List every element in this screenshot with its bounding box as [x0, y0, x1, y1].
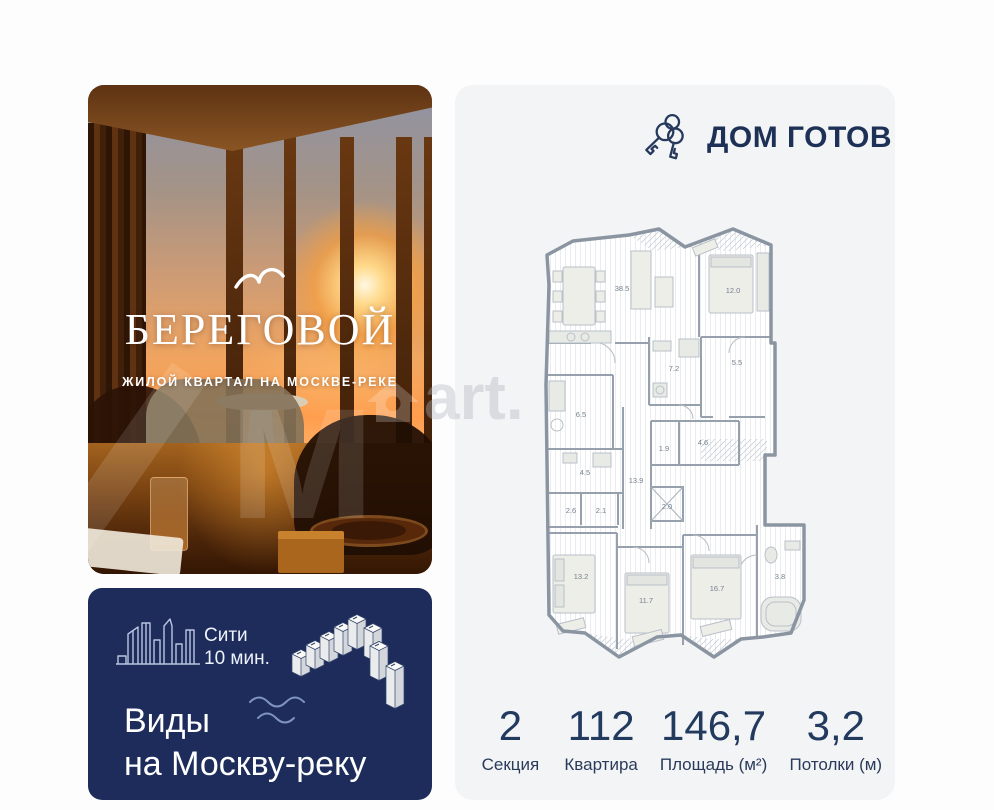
room-label: 2.0 [662, 502, 672, 511]
stats-row: 2 Секция 112 Квартира 146,7 Площадь (м²)… [455, 703, 895, 775]
stat-ceiling: 3,2 Потолки (м) [777, 703, 895, 775]
brand-block: БЕРЕГОВОЙ ЖИЛОЙ КВАРТАЛ НА МОСКВЕ-РЕКЕ [88, 263, 432, 389]
transit-line2: 10 мин. [204, 647, 270, 670]
room-label: 2.1 [596, 506, 606, 515]
room-label: 4.6 [698, 438, 708, 447]
brand-tagline: ЖИЛОЙ КВАРТАЛ НА МОСКВЕ-РЕКЕ [88, 375, 432, 389]
gallery-photo-card[interactable]: м БЕРЕГОВОЙ ЖИЛОЙ КВАРТАЛ НА МОСКВЕ-РЕКЕ [88, 85, 432, 574]
room-label: 2.6 [566, 506, 576, 515]
room-label: 1.9 [659, 444, 669, 453]
room-label: 3.8 [775, 572, 785, 581]
brand-title: БЕРЕГОВОЙ [88, 304, 432, 355]
stat-apartment: 112 Квартира [552, 703, 651, 775]
stat-value: 112 [552, 703, 651, 749]
watermark-text: art. [424, 360, 524, 434]
stat-label: Площадь (м²) [650, 755, 776, 775]
transit-label: Сити 10 мин. [204, 624, 270, 670]
room-label: 13.9 [629, 476, 644, 485]
listing-image: м БЕРЕГОВОЙ ЖИЛОЙ КВАРТАЛ НА МОСКВЕ-РЕКЕ [0, 0, 994, 810]
stat-value: 3,2 [777, 703, 895, 749]
floor-plan: 38.5 12.0 7.2 5.5 6.5 4.6 1.9 4.5 13.9 2… [533, 225, 815, 659]
moscow-city-skyline-icon [116, 616, 200, 666]
stat-section: 2 Секция [469, 703, 552, 775]
stat-label: Квартира [552, 755, 651, 775]
room-label: 12.0 [726, 286, 741, 295]
status-label: ДОМ ГОТОВ [707, 121, 892, 155]
seagull-icon [231, 263, 289, 293]
banner-title-line2: на Москву-реку [124, 743, 366, 786]
stat-label: Секция [469, 755, 552, 775]
room-label: 11.7 [639, 596, 653, 605]
room-label: 16.7 [710, 584, 725, 593]
promo-banner[interactable]: Сити 10 мин. [88, 588, 432, 800]
room-label: 5.5 [732, 358, 742, 367]
banner-title: Виды на Москву-реку [124, 700, 366, 786]
stat-value: 2 [469, 703, 552, 749]
keys-icon [638, 111, 692, 165]
banner-title-line1: Виды [124, 700, 366, 743]
room-label: 4.5 [580, 468, 590, 477]
stat-value: 146,7 [650, 703, 776, 749]
room-label: 13.2 [574, 572, 589, 581]
room-label: 6.5 [576, 410, 586, 419]
status-row: ДОМ ГОТОВ [638, 111, 892, 165]
stat-area: 146,7 Площадь (м²) [650, 703, 776, 775]
plan-card[interactable]: ДОМ ГОТОВ [455, 85, 895, 800]
room-label: 7.2 [669, 364, 679, 373]
transit-line1: Сити [204, 624, 270, 647]
room-label: 38.5 [615, 284, 630, 293]
stat-label: Потолки (м) [777, 755, 895, 775]
